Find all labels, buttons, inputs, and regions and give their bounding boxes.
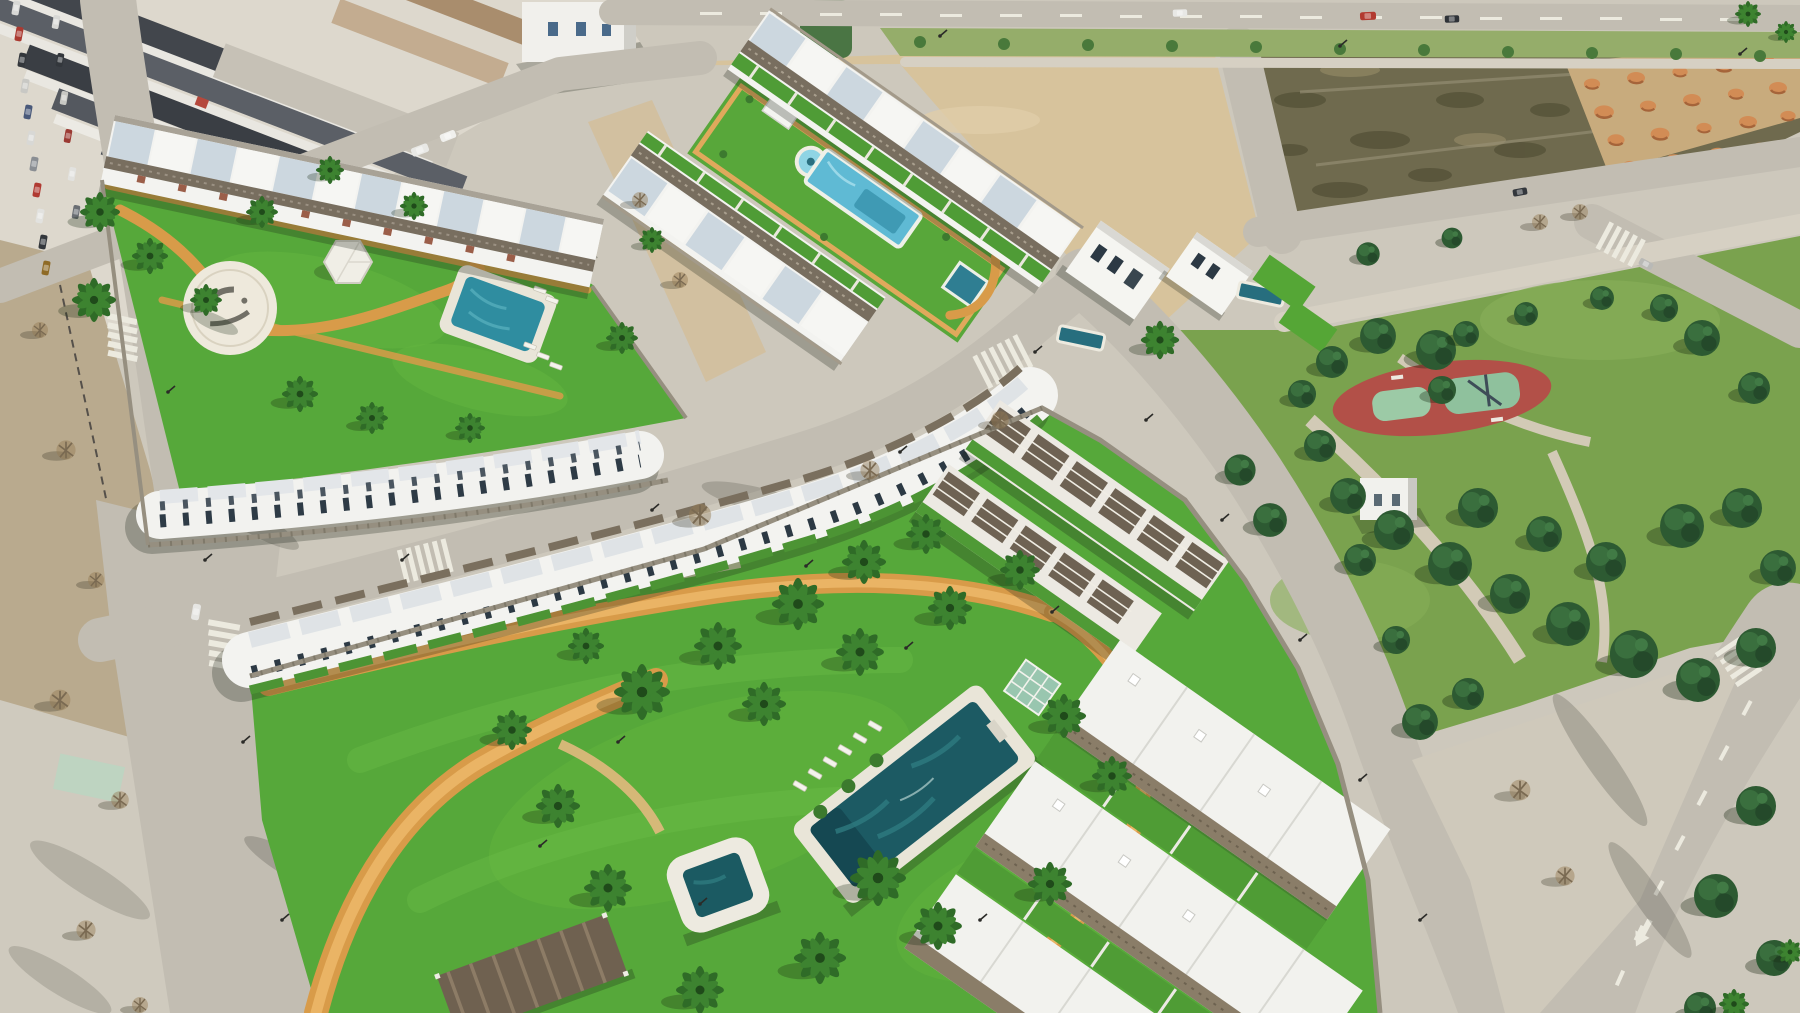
aerial-render-image (0, 0, 1800, 1013)
scene-canvas (0, 0, 1800, 1013)
